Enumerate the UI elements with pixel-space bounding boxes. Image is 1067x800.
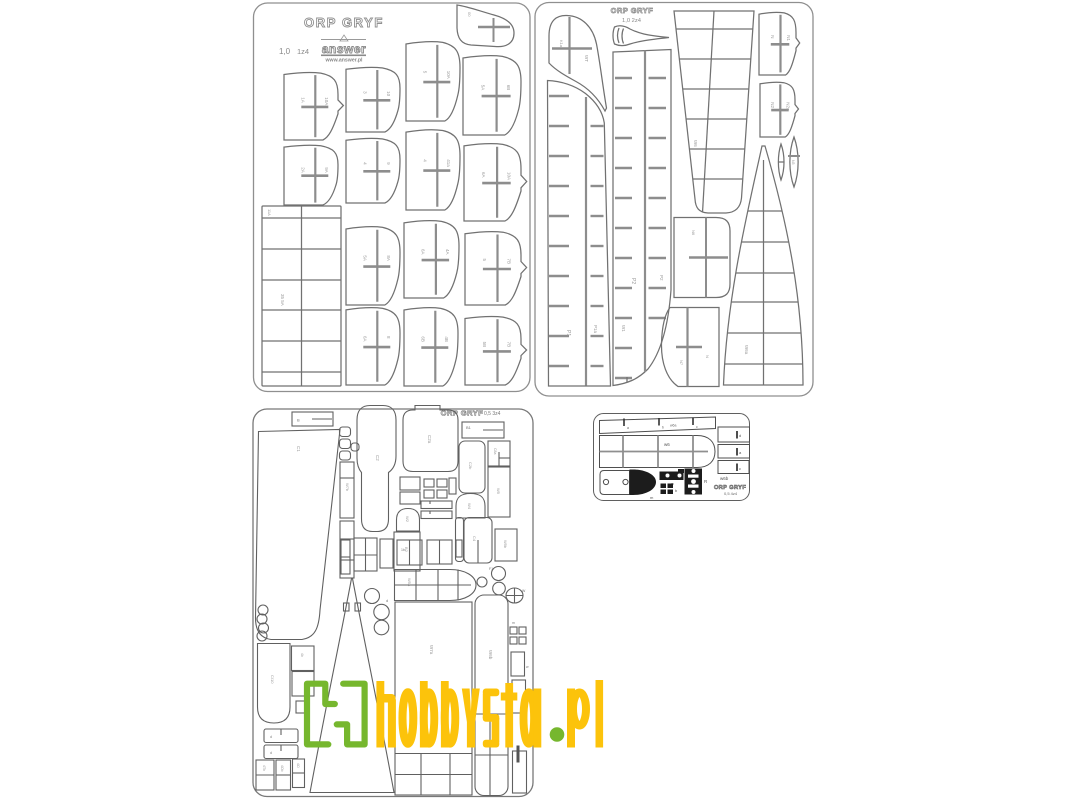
svg-text:4O: 4O — [296, 763, 300, 768]
svg-text:N1: N1 — [786, 35, 791, 41]
svg-text:1b: 1b — [401, 548, 405, 552]
svg-text:c: c — [696, 425, 698, 429]
svg-text:10A: 10A — [324, 97, 329, 105]
svg-text:1z4: 1z4 — [297, 47, 309, 56]
svg-text:d: d — [739, 433, 741, 438]
svg-text:W7a: W7a — [429, 645, 434, 655]
svg-text:1,0 2z4: 1,0 2z4 — [622, 18, 642, 24]
svg-text:N7: N7 — [679, 360, 684, 366]
svg-text:N3: N3 — [791, 160, 795, 165]
svg-text:W4: W4 — [467, 503, 472, 510]
svg-text:P2: P2 — [630, 278, 636, 284]
svg-text:35 5A: 35 5A — [280, 294, 285, 306]
svg-text:00: 00 — [467, 12, 472, 17]
svg-text:8A: 8A — [386, 255, 391, 261]
svg-text:C2a: C2a — [427, 435, 432, 444]
svg-text:m: m — [512, 621, 515, 625]
svg-text:N: N — [705, 355, 710, 358]
svg-text:W6b: W6b — [488, 650, 493, 660]
svg-text:w6a: w6a — [670, 424, 676, 428]
svg-text:0,5 4z4: 0,5 4z4 — [724, 491, 738, 496]
svg-text:N2a: N2a — [786, 102, 791, 111]
svg-text:10: 10 — [386, 91, 391, 97]
svg-text:C1: C1 — [296, 446, 301, 452]
svg-text:5A: 5A — [362, 255, 367, 261]
svg-text:B: B — [297, 418, 300, 423]
svg-text:B1: B1 — [466, 425, 472, 430]
svg-text:w6b: w6b — [720, 476, 729, 481]
svg-text:6A: 6A — [421, 249, 426, 255]
svg-text:7B: 7B — [507, 259, 512, 265]
svg-text:P1a: P1a — [593, 325, 598, 334]
svg-text:W7b: W7b — [345, 483, 350, 492]
svg-text:N2: N2 — [770, 102, 775, 108]
svg-text:5B: 5B — [482, 342, 487, 348]
svg-text:c: c — [739, 466, 741, 471]
svg-text:W5b: W5b — [503, 540, 508, 549]
svg-text:a: a — [627, 426, 629, 430]
svg-text:W1: W1 — [621, 325, 626, 332]
svg-text:1,0: 1,0 — [279, 47, 291, 56]
svg-text:C8a: C8a — [493, 448, 497, 454]
svg-text:4Ob: 4Ob — [280, 765, 284, 772]
svg-text:5A: 5A — [481, 85, 486, 91]
svg-text:N: N — [770, 35, 775, 38]
svg-text:P1: P1 — [565, 330, 571, 336]
svg-text:b: b — [662, 426, 664, 430]
svg-text:4B: 4B — [444, 336, 449, 342]
svg-text:6A: 6A — [362, 336, 367, 342]
svg-text:10A: 10A — [446, 71, 451, 79]
svg-text:d: d — [270, 735, 272, 739]
svg-text:ORP GRYF: ORP GRYF — [304, 15, 384, 30]
svg-text:6B: 6B — [420, 336, 425, 342]
svg-text:W2: W2 — [405, 516, 410, 523]
svg-text:4Tb: 4Tb — [262, 765, 266, 771]
svg-text:N6: N6 — [691, 230, 696, 236]
svg-text:2A: 2A — [300, 167, 305, 173]
svg-text:11A: 11A — [267, 209, 272, 216]
svg-text:6B: 6B — [506, 85, 511, 91]
svg-text:answer: answer — [322, 42, 366, 56]
svg-text:C4: C4 — [472, 536, 477, 542]
svg-text:C2: C2 — [375, 455, 380, 461]
svg-text:1A: 1A — [300, 97, 305, 103]
svg-text:0,5 3z4: 0,5 3z4 — [484, 411, 501, 417]
svg-text:41a: 41a — [446, 159, 451, 167]
svg-text:C2b: C2b — [468, 462, 473, 470]
svg-text:www.answer.pl: www.answer.pl — [325, 58, 364, 64]
svg-text:K1a: K1a — [559, 40, 564, 48]
svg-text:9A: 9A — [324, 167, 329, 173]
svg-text:ORP GRYF: ORP GRYF — [611, 6, 654, 15]
svg-text:4b: 4b — [300, 653, 304, 657]
svg-text:W5: W5 — [496, 488, 501, 495]
svg-text:F1: F1 — [489, 567, 493, 571]
svg-text:W5a: W5a — [407, 578, 412, 587]
svg-text:W6a: W6a — [744, 345, 749, 355]
svg-text:C/10: C/10 — [270, 675, 275, 684]
svg-text:10A: 10A — [506, 172, 511, 180]
svg-text:P2: P2 — [659, 275, 664, 281]
svg-text:w6: w6 — [664, 442, 670, 447]
svg-text:6A: 6A — [481, 172, 486, 178]
svg-text:7B: 7B — [507, 342, 512, 348]
svg-text:W6: W6 — [693, 140, 698, 147]
svg-text:d: d — [386, 598, 388, 603]
svg-text:4A: 4A — [445, 249, 450, 255]
svg-text:d: d — [270, 751, 272, 755]
svg-text:WT: WT — [584, 55, 589, 62]
